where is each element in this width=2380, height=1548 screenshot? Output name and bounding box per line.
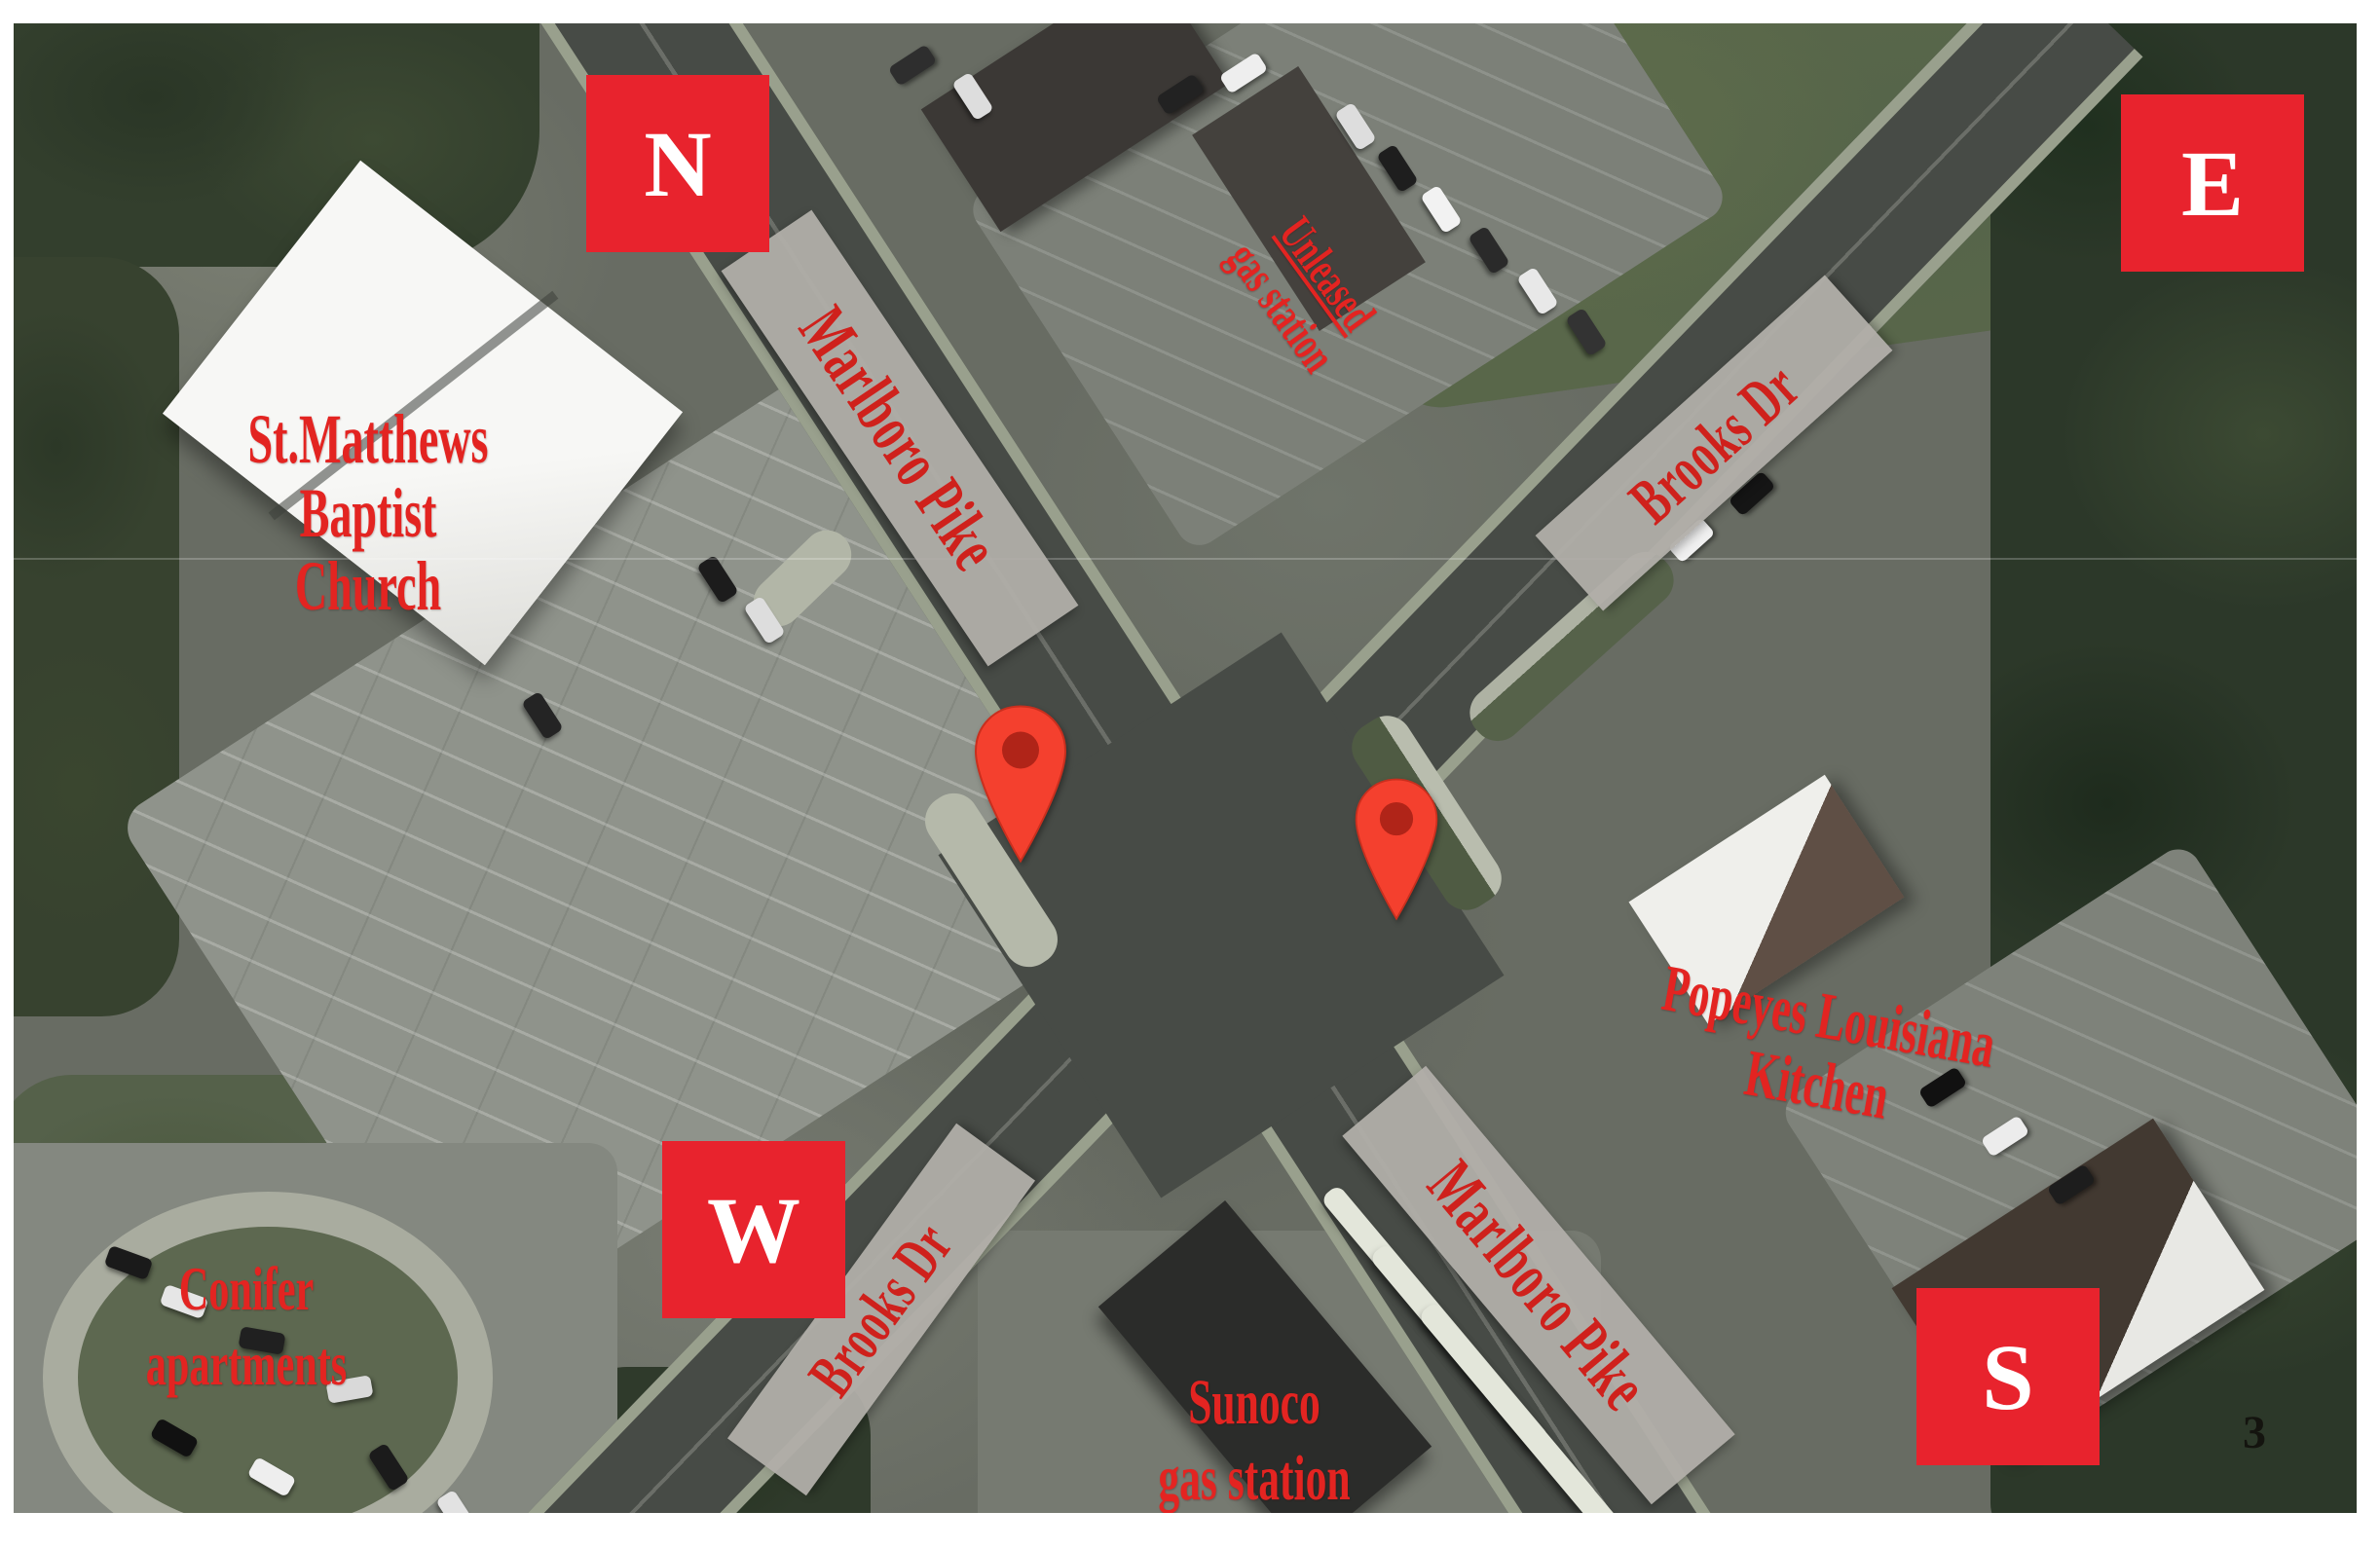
label-sunoco-line1: Sunoco [1094,1365,1415,1441]
label-church: St.Matthews Baptist Church [181,403,555,624]
label-sunoco-line2: gas station [1094,1441,1415,1513]
compass-south-letter: S [1982,1323,2033,1431]
forest-northwest [14,23,539,267]
slide-page-number: 3 [2243,1406,2266,1459]
label-conifer-apartments: Conifer apartments [86,1252,407,1402]
compass-east-badge: E [2121,94,2304,272]
label-church-line1: St.Matthews Baptist [181,403,555,550]
compass-east-letter: E [2181,129,2244,238]
trees-west [14,257,179,1016]
compass-south-badge: S [1916,1288,2100,1465]
label-church-line2: Church [181,550,555,624]
compass-west-letter: W [707,1176,800,1284]
label-sunoco: Sunoco gas station [1094,1365,1415,1513]
slide-page: { "slide": { "page_number": "3" }, "colo… [0,0,2380,1548]
map-pin-icon-east [1353,772,1440,928]
label-conifer-line2: apartments [86,1327,407,1402]
compass-north-letter: N [644,110,711,218]
label-conifer-line1: Conifer [86,1252,407,1327]
parked-car [888,44,938,87]
compass-north-badge: N [586,75,769,252]
compass-west-badge: W [662,1141,845,1318]
satellite-map: N E W S Marlboro Pike Brooks Dr Brooks D… [14,23,2357,1513]
map-pin-icon-west [972,703,1069,866]
